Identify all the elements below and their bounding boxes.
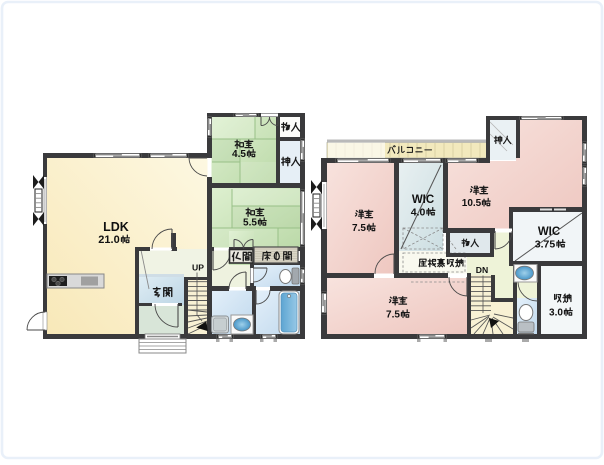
svg-text:WIC: WIC xyxy=(412,194,434,206)
svg-text:DN: DN xyxy=(476,265,488,275)
svg-text:7.5: 7.5 xyxy=(352,223,366,234)
svg-text:3.75: 3.75 xyxy=(535,239,556,251)
svg-text:10.5: 10.5 xyxy=(462,198,482,209)
svg-text:4.0: 4.0 xyxy=(411,207,426,219)
svg-text:UP: UP xyxy=(192,263,204,273)
svg-text:7.5: 7.5 xyxy=(386,310,400,321)
svg-text:4.5: 4.5 xyxy=(232,149,246,160)
svg-text:3.0: 3.0 xyxy=(549,308,563,319)
svg-text:21.0: 21.0 xyxy=(98,234,119,246)
svg-text:WIC: WIC xyxy=(538,226,560,238)
svg-text:5.5: 5.5 xyxy=(243,218,257,229)
svg-text:LDK: LDK xyxy=(103,220,129,234)
